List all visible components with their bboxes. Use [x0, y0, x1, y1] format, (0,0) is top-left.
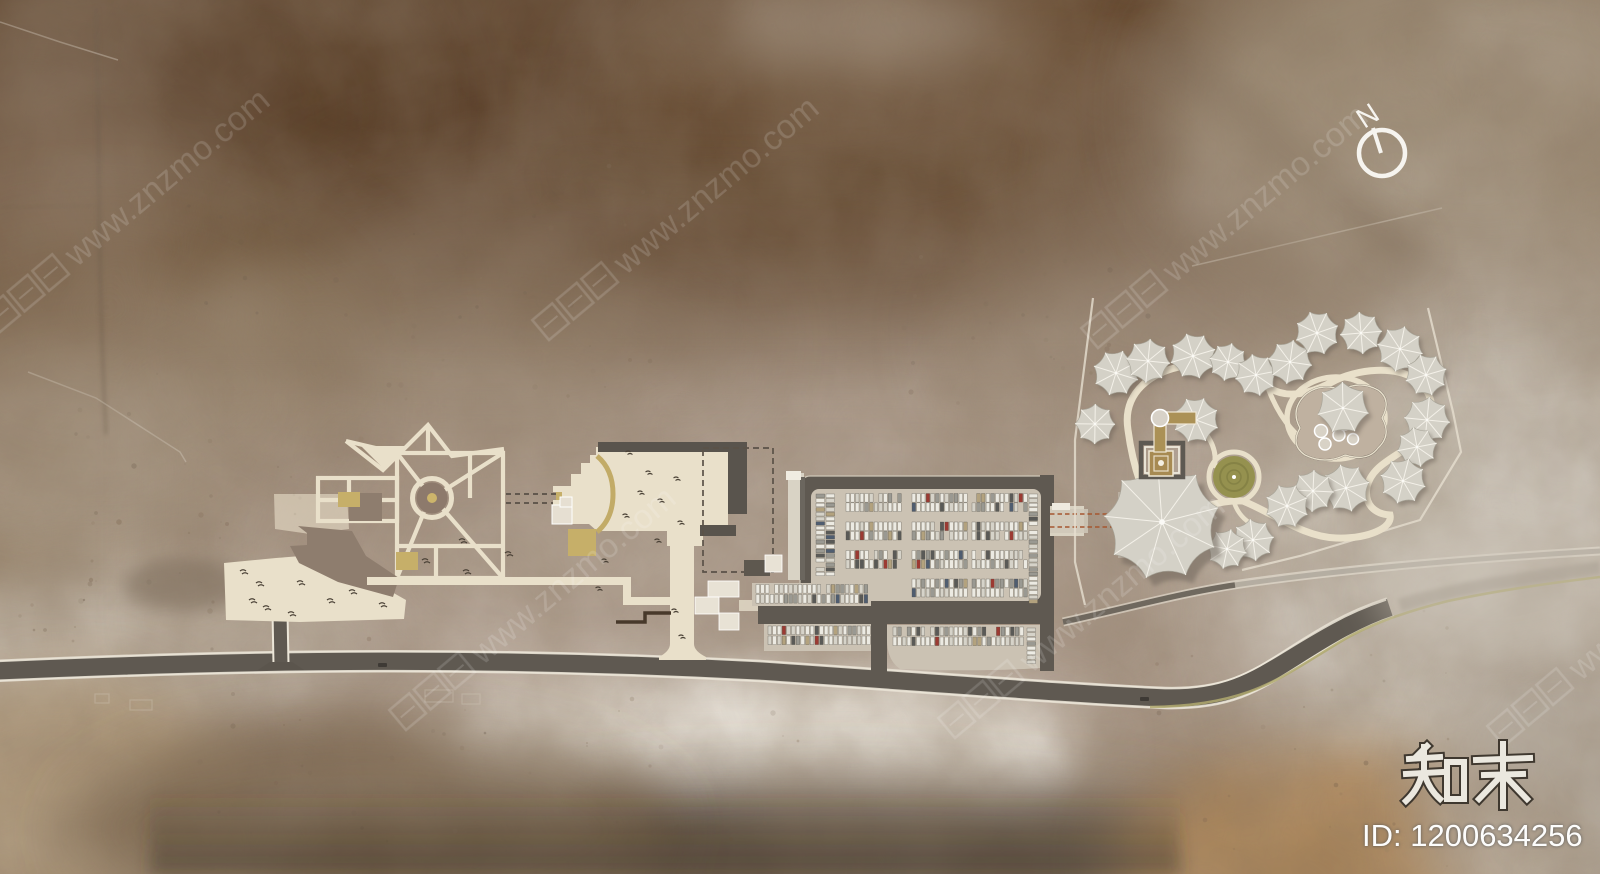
svg-text:ID: 1200634256: ID: 1200634256: [1362, 818, 1583, 853]
